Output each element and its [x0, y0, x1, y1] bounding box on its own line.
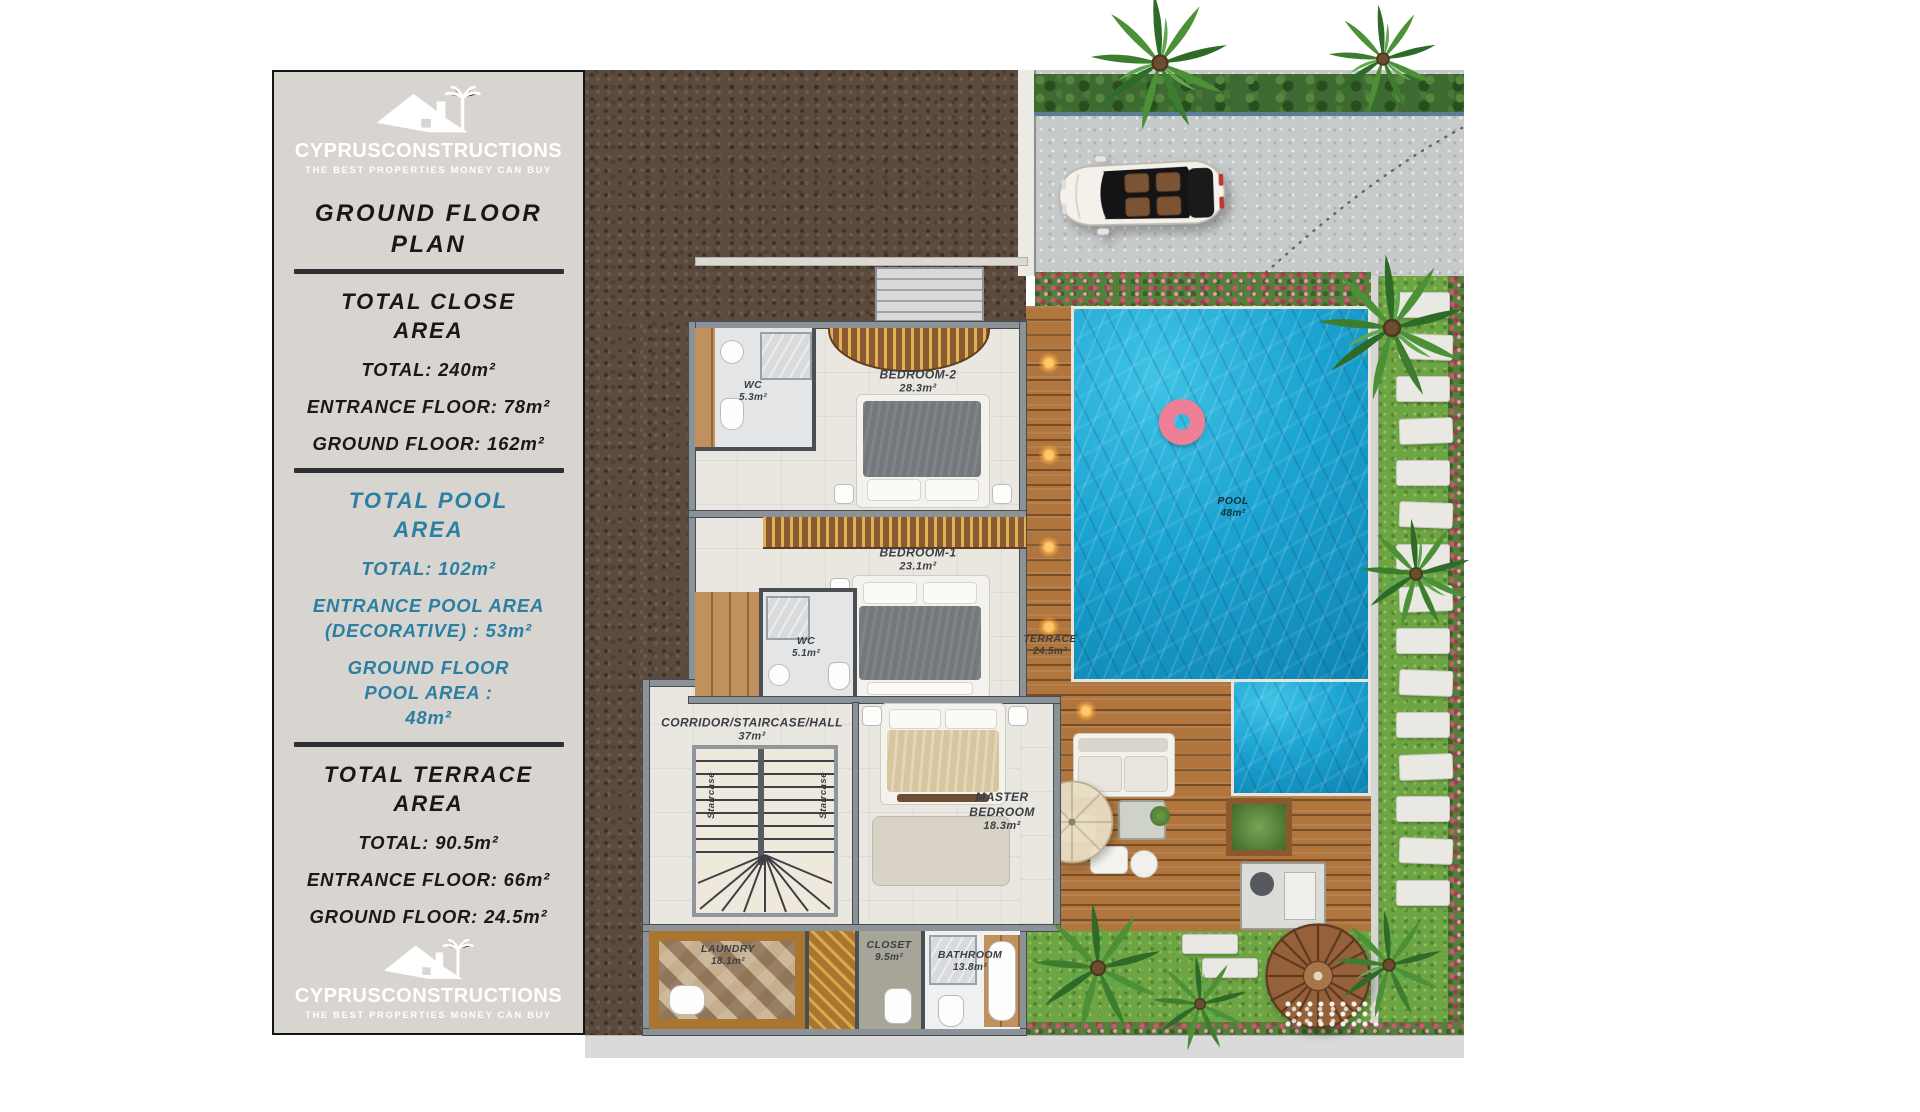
close-area-total: TOTAL: 240m² — [281, 358, 576, 383]
wc1-shower — [760, 332, 812, 380]
staircase-label: Staircase — [818, 772, 829, 819]
room-label-master: MASTER BEDROOM18.3m² — [954, 790, 1050, 834]
wc2-wall-west — [759, 588, 763, 700]
room-label-corridor: CORRIDOR/STAIRCASE/HALL37m² — [661, 716, 843, 745]
pool-area-ground: GROUND FLOOR POOL AREA : 48m² — [341, 656, 516, 731]
plan-title: GROUND FLOOR PLAN — [306, 198, 551, 260]
sidewalk-bottom — [585, 1035, 1464, 1058]
wc1-wall-east — [812, 328, 816, 451]
bedroom1-bed — [852, 575, 990, 699]
wc1-sink — [720, 340, 744, 364]
terrace-area-total: TOTAL: 90.5m² — [281, 831, 576, 856]
swim-ring — [1159, 399, 1205, 445]
info-panel: CYPRUSCONSTRUCTIONS THE BEST PROPERTIES … — [272, 70, 585, 1035]
nightstand — [1008, 706, 1028, 726]
stepping-stone — [1399, 753, 1454, 781]
brand-tagline: THE BEST PROPERTIES MONEY CAN BUY — [274, 165, 583, 176]
deck-light — [1038, 352, 1060, 374]
room-label-terrace: TERRACE24.5m² — [1023, 633, 1077, 659]
divider-bar — [294, 742, 564, 747]
close-area-entrance: ENTRANCE FLOOR: 78m² — [281, 395, 576, 420]
room-label-wc2: WC5.1m² — [792, 635, 820, 661]
stepping-stone — [1399, 669, 1454, 697]
floor-plan-page: Staircase Staircase WC5.3m² BEDROOM-228.… — [0, 0, 1920, 1112]
soil-notch — [643, 322, 689, 680]
close-area-heading: TOTAL CLOSE AREA — [321, 288, 536, 345]
stepping-stone — [1396, 796, 1450, 822]
nightstand — [992, 484, 1012, 504]
room-label-bedroom2: BEDROOM-228.3m² — [880, 368, 957, 397]
brand-name: CYPRUSCONSTRUCTIONS — [274, 985, 583, 1007]
nightstand — [862, 706, 882, 726]
wc2-entry-wood — [695, 592, 759, 700]
deck-light — [1075, 700, 1097, 722]
logo-house-icon — [374, 939, 484, 989]
bedroom2-bed — [856, 394, 990, 508]
room-label-closet: CLOSET9.5m² — [867, 939, 912, 965]
wall-notch-south — [643, 680, 695, 686]
terrace-area-heading: TOTAL TERRACE AREA — [321, 761, 536, 818]
deck-planter — [1226, 798, 1292, 856]
pool-area-entrance: ENTRANCE POOL AREA (DECORATIVE) : 53m² — [301, 594, 556, 644]
staircase-label: Staircase — [706, 772, 717, 819]
wall-east-lower — [1020, 925, 1026, 1035]
wc2-wall-north — [759, 588, 857, 592]
close-area-ground: GROUND FLOOR: 162m² — [281, 432, 576, 457]
room-label-bedroom1: BEDROOM-123.1m² — [880, 546, 957, 575]
stepping-stone — [1396, 712, 1450, 738]
wall-master-west — [853, 703, 858, 925]
deck-light — [1038, 536, 1060, 558]
stair-center-wall — [758, 749, 764, 865]
hall-wardrobe — [809, 931, 857, 1029]
logo-top: CYPRUSCONSTRUCTIONS THE BEST PROPERTIES … — [274, 86, 583, 176]
stepping-stone — [1399, 837, 1454, 865]
wc1-wall-south — [695, 447, 816, 451]
logo-bottom: CYPRUSCONSTRUCTIONS THE BEST PROPERTIES … — [274, 939, 583, 1021]
divider-bar — [294, 468, 564, 473]
palm-tree — [1330, 906, 1448, 1024]
terrace-area-ground: GROUND FLOOR: 24.5m² — [281, 905, 576, 930]
logo-house-icon — [364, 86, 494, 144]
deck-light — [1038, 444, 1060, 466]
potted-plant — [1150, 806, 1170, 826]
palm-tree — [1356, 514, 1476, 634]
brand-name: CYPRUSCONSTRUCTIONS — [274, 140, 583, 162]
bathroom-toilet — [938, 995, 964, 1027]
wall-master-east — [1054, 697, 1060, 931]
closet-seat — [884, 988, 912, 1024]
wc2-shower — [766, 596, 810, 640]
palm-tree — [1148, 952, 1252, 1056]
stair-winders — [696, 853, 834, 913]
palm-tree — [1312, 248, 1472, 408]
stepping-stone — [1396, 880, 1450, 906]
room-label-wc1: WC5.3m² — [739, 379, 767, 405]
terrace-area-entrance: ENTRANCE FLOOR: 66m² — [281, 868, 576, 893]
palm-tree — [1324, 0, 1442, 118]
wc2-wall-east — [853, 588, 857, 700]
room-label-laundry: LAUNDRY18.1m² — [701, 943, 755, 969]
pool-area-total: TOTAL: 102m² — [281, 557, 576, 582]
palm-tree — [1028, 898, 1168, 1038]
pool-area-heading: TOTAL POOL AREA — [321, 487, 536, 544]
brand-tagline: THE BEST PROPERTIES MONEY CAN BUY — [274, 1010, 583, 1021]
divider-bar — [294, 269, 564, 274]
room-label-bathroom: BATHROOM13.8m² — [938, 949, 1002, 975]
stepping-stone — [1396, 460, 1450, 486]
palm-tree — [1085, 0, 1235, 138]
bedroom1-wardrobe — [763, 517, 1026, 549]
room-label-pool: POOL48m² — [1217, 495, 1248, 521]
wc2-sink — [768, 664, 790, 686]
nightstand — [834, 484, 854, 504]
wc2-toilet — [828, 662, 850, 690]
retaining-wall — [695, 257, 1028, 266]
round-table — [1130, 850, 1158, 878]
car — [1046, 143, 1233, 245]
stepping-stone — [1399, 417, 1454, 445]
lawn-slab — [1182, 934, 1238, 954]
wc1-wood-strip — [695, 328, 715, 447]
swimming-pool-arm — [1231, 679, 1371, 796]
wall-south — [643, 1029, 1026, 1035]
entrance-steps — [875, 267, 984, 322]
wall-corridor-north — [689, 697, 1060, 703]
